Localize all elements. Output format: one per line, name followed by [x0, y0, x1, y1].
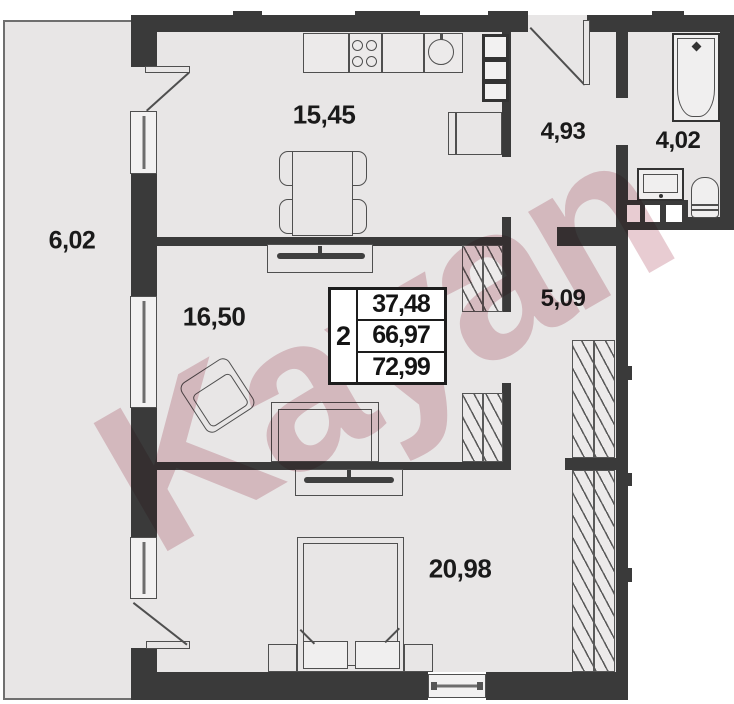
stove-burner-4: [366, 56, 377, 67]
ladder-rung-1: [485, 57, 506, 62]
floor-plan: 15,45 4,93 4,02 6,02 16,50 5,09 20,98 2 …: [0, 0, 734, 704]
room-label-entry-hall: 4,93: [541, 118, 586, 146]
wall-bottom-right: [486, 672, 628, 700]
wardrobe-living-1: [462, 245, 503, 312]
bathtub: [672, 33, 720, 122]
sofa-seat: [278, 409, 372, 461]
halls-passage-floor: [511, 227, 557, 246]
vent-shaft-ladder: [482, 34, 509, 102]
toilet-tank-line-2: [692, 209, 718, 211]
total-area-value: 72,99: [358, 353, 444, 382]
stove-burner-1: [352, 40, 363, 51]
living-window: [130, 296, 157, 408]
main-area-value: 66,97: [358, 321, 444, 352]
bed-pillow-right: [355, 641, 400, 669]
bedroom-passage-floor: [511, 462, 567, 470]
kitchen-balcony-door-leaf: [145, 66, 190, 73]
rooms-count: 2: [331, 290, 358, 382]
wall-nub-right-2: [628, 473, 632, 486]
bedroom-window: [130, 537, 157, 599]
room-label-bedroom: 20,98: [429, 554, 492, 585]
sink-bowl: [428, 39, 454, 65]
room-label-inner-hall: 5,09: [541, 285, 586, 313]
counter-divider-1: [348, 33, 350, 73]
wall-top-left: [131, 15, 528, 32]
wall-bottom-left: [131, 672, 428, 700]
counter-divider-2: [381, 33, 383, 73]
balcony-floor: [3, 20, 131, 700]
wall-nub-top-1: [233, 11, 262, 19]
wardrobe-bedroom: [572, 470, 615, 672]
living-area-value: 37,48: [358, 290, 444, 321]
bed: [297, 537, 404, 672]
toilet: [691, 177, 719, 218]
bathroom-doorway-floor: [616, 98, 628, 145]
wall-left-2: [131, 173, 157, 297]
bathroom-duct-box: [621, 200, 688, 227]
wall-nub-right-1: [628, 366, 632, 380]
wall-left-1: [131, 20, 157, 67]
wall-nub-top-3: [488, 11, 528, 19]
entrance-door-leaf: [583, 20, 590, 85]
living-tv-mount: [318, 246, 322, 254]
wall-kitchen-hall-b: [502, 217, 511, 246]
wall-right-outer: [616, 230, 628, 700]
room-label-kitchen: 15,45: [293, 100, 356, 131]
area-info-box: 2 37,48 66,97 72,99: [328, 287, 447, 385]
counter-divider-3: [423, 33, 425, 73]
cabinet-door-line: [455, 113, 457, 154]
ladder-rung-2: [485, 79, 506, 84]
wall-nub-right-3: [628, 568, 632, 582]
washbasin-bowl: [643, 174, 678, 193]
washbasin: [637, 168, 684, 201]
dining-table: [292, 151, 353, 236]
kitchen-cabinet: [448, 112, 502, 155]
room-label-balcony: 6,02: [49, 227, 96, 256]
stove-burner-2: [366, 40, 377, 51]
stove-burner-3: [352, 56, 363, 67]
room-label-living: 16,50: [183, 302, 246, 333]
radiator-cap-left: [431, 682, 437, 690]
room-label-bathroom: 4,02: [656, 127, 701, 155]
bedroom-tv-mount: [347, 470, 351, 478]
nightstand-left: [268, 644, 297, 672]
kitchen-doorway-floor: [502, 157, 511, 217]
nightstand-right: [404, 644, 433, 672]
living-doorway-floor: [502, 312, 511, 383]
wall-living-hall-a: [502, 246, 511, 312]
wall-left-3: [131, 407, 157, 538]
wall-bathroom-right: [720, 15, 734, 230]
duct-cell-1: [627, 205, 640, 222]
washbasin-tap: [659, 194, 663, 198]
bed-pillow-left: [303, 641, 348, 669]
radiator-cap-right: [477, 682, 483, 690]
wall-living-hall-b: [502, 383, 511, 470]
wall-nub-top-2: [355, 11, 420, 19]
wardrobe-hall: [572, 340, 615, 458]
sofa: [271, 402, 379, 462]
wardrobe-living-2: [462, 393, 503, 462]
toilet-tank-line-1: [692, 204, 718, 206]
entrance-opening-floor: [528, 15, 587, 32]
duct-cell-3: [666, 205, 682, 222]
duct-cell-2: [645, 205, 660, 222]
area-values: 37,48 66,97 72,99: [358, 290, 444, 382]
wall-nub-top-4: [652, 11, 684, 19]
wall-wardrobe-divider: [565, 458, 617, 470]
kitchen-window: [130, 111, 157, 174]
wall-bathroom-left-a: [616, 15, 628, 98]
